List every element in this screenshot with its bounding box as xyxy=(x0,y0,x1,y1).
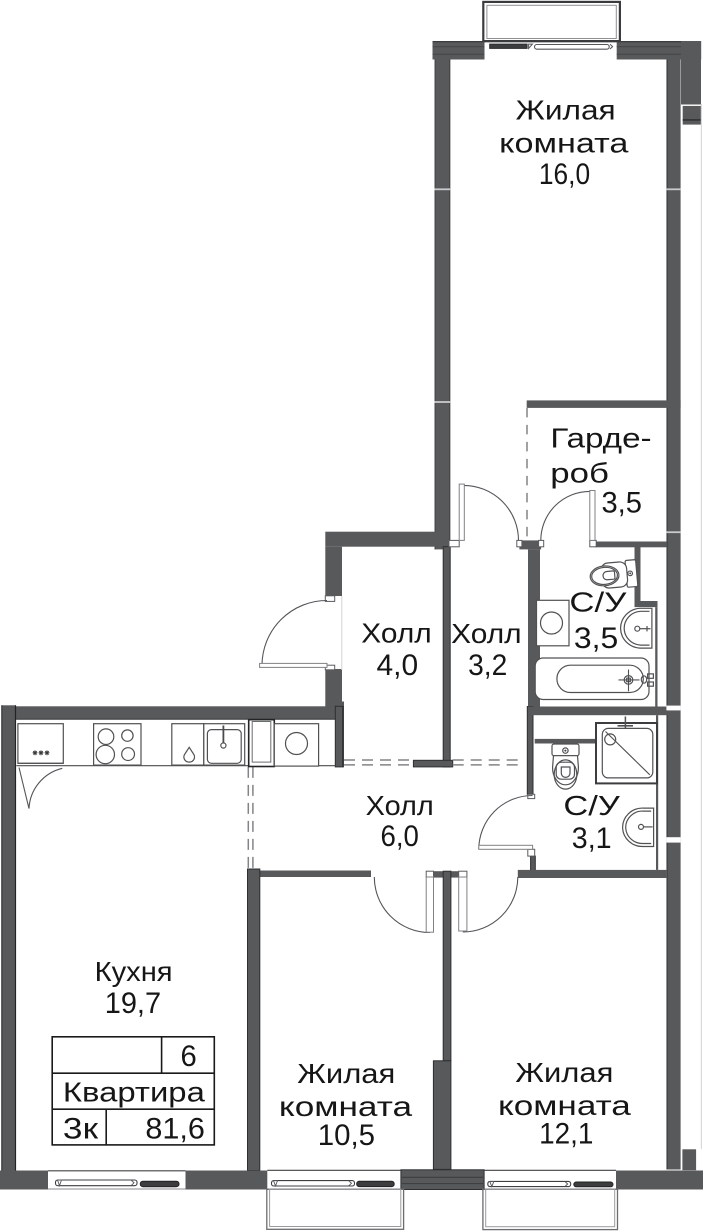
svg-text:роб: роб xyxy=(550,458,609,489)
svg-text:10,5: 10,5 xyxy=(318,1120,375,1152)
svg-text:С/У: С/У xyxy=(569,587,627,618)
svg-text:3,1: 3,1 xyxy=(572,823,612,855)
svg-text:Холл: Холл xyxy=(361,618,431,649)
svg-text:С/У: С/У xyxy=(563,790,620,821)
svg-text:6,0: 6,0 xyxy=(381,821,419,853)
svg-text:4,0: 4,0 xyxy=(377,650,419,682)
svg-text:81,6: 81,6 xyxy=(145,1114,205,1146)
svg-text:12,1: 12,1 xyxy=(539,1119,593,1151)
svg-text:6: 6 xyxy=(180,1041,196,1073)
svg-text:Кухня: Кухня xyxy=(95,956,173,987)
svg-text:3к: 3к xyxy=(63,1114,98,1146)
svg-text:комната: комната xyxy=(499,128,629,159)
svg-text:комната: комната xyxy=(279,1091,413,1122)
svg-text:Жилая: Жилая xyxy=(515,1057,613,1088)
svg-text:3,5: 3,5 xyxy=(574,623,618,655)
svg-text:Квартира: Квартира xyxy=(63,1077,206,1108)
svg-text:3,5: 3,5 xyxy=(601,488,642,520)
svg-text:комната: комната xyxy=(498,1090,632,1121)
svg-text:Холл: Холл xyxy=(451,618,521,649)
svg-text:Гарде-: Гарде- xyxy=(550,422,651,453)
svg-text:3,2: 3,2 xyxy=(468,650,507,682)
svg-text:19,7: 19,7 xyxy=(105,988,161,1020)
svg-text:16,0: 16,0 xyxy=(539,159,590,191)
svg-text:Жилая: Жилая xyxy=(516,95,616,126)
svg-text:Жилая: Жилая xyxy=(297,1058,395,1089)
svg-text:Холл: Холл xyxy=(366,790,434,821)
